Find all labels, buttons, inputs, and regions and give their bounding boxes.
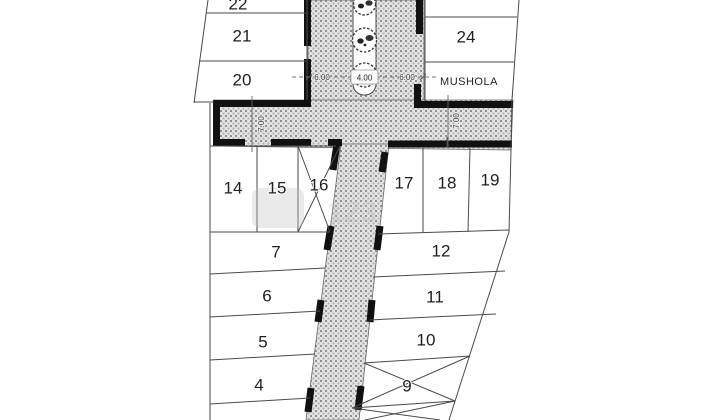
boundary-line	[468, 148, 470, 232]
boundary-line	[210, 268, 325, 274]
dimension-label-median: 4.00	[357, 74, 373, 83]
site-plan-page: 123 6.00 4.00 6.00 7.00 7.00 22 21 20 24…	[0, 0, 720, 420]
wall-segment	[377, 226, 380, 250]
boundary-line	[378, 230, 509, 234]
plot-label-4: 4	[254, 375, 263, 394]
plot-label-14: 14	[224, 178, 243, 197]
boundary-line	[364, 356, 470, 363]
plot-label-18: 18	[438, 173, 457, 192]
plot-label-9: 9	[402, 376, 411, 395]
plot-label-17: 17	[395, 173, 414, 192]
boundary-line	[194, 0, 208, 103]
boundary-line	[210, 311, 320, 317]
plot9-cross-line	[352, 408, 440, 420]
boundary-line	[369, 314, 496, 320]
plot-label-7: 7	[271, 242, 280, 261]
plot-label-5: 5	[258, 332, 267, 351]
site-plan-drawing: 123 6.00 4.00 6.00 7.00 7.00 22 21 20 24…	[0, 0, 720, 420]
dimension-label-lane-left: 6.00	[314, 73, 330, 82]
tree-icon	[353, 28, 377, 52]
plot-label-21: 21	[233, 26, 252, 45]
plot-label-19: 19	[481, 170, 500, 189]
plot-label-10: 10	[417, 330, 436, 349]
dimension-label-lane-right: 6.00	[399, 73, 415, 82]
plot-label-12: 12	[432, 241, 451, 260]
plot-label-6: 6	[262, 286, 271, 305]
dimension-label-cross-right: 7.00	[452, 113, 461, 129]
watermark-text: 123	[327, 196, 377, 229]
plot-label-24: 24	[457, 27, 476, 46]
dimension-label-cross-left: 7.00	[257, 116, 266, 132]
boundary-line	[373, 271, 505, 277]
plot-label-16: 16	[310, 175, 329, 194]
boundary-line	[210, 398, 310, 404]
mushola-label: MUSHOLA	[440, 76, 498, 88]
wall-segment	[308, 388, 311, 412]
plot-label-15: 15	[268, 178, 287, 197]
wall-segment	[358, 386, 361, 410]
boundary-line	[210, 354, 315, 360]
plot-label-11: 11	[426, 287, 444, 306]
wall-segment	[382, 152, 385, 172]
plot-label-20: 20	[233, 70, 252, 89]
plot-label-22: 22	[229, 0, 248, 13]
wall-segment	[370, 300, 372, 322]
